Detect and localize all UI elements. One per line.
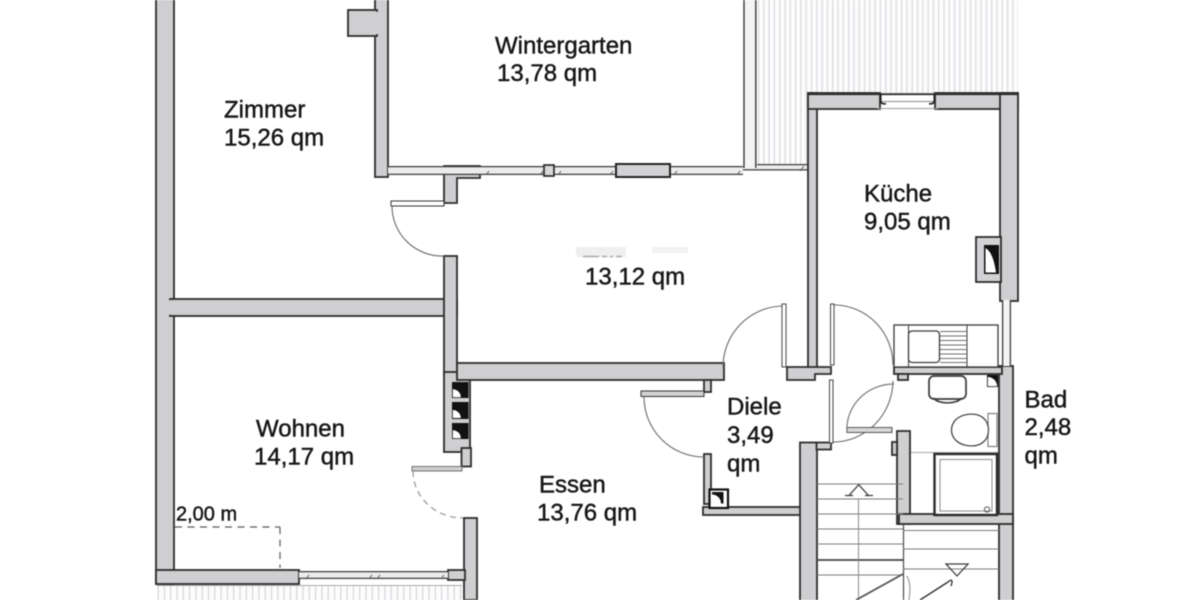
svg-text:Küche: Küche: [864, 181, 932, 208]
svg-text:13,76 qm: 13,76 qm: [537, 500, 637, 527]
svg-text:Zimmer: Zimmer: [224, 97, 305, 124]
svg-text:Wohnen: Wohnen: [256, 416, 345, 443]
svg-text:Diele: Diele: [727, 394, 782, 421]
svg-text:9,05 qm: 9,05 qm: [864, 209, 951, 236]
svg-text:Wintergarten: Wintergarten: [495, 33, 632, 60]
svg-text:2,48: 2,48: [1025, 414, 1072, 441]
svg-text:14,17 qm: 14,17 qm: [254, 444, 354, 471]
svg-text:15,26 qm: 15,26 qm: [224, 125, 324, 152]
svg-text:qm: qm: [727, 451, 760, 478]
svg-text:2,00 m: 2,00 m: [176, 504, 237, 526]
svg-text:13,12 qm: 13,12 qm: [585, 264, 685, 291]
svg-text:Essen: Essen: [539, 472, 606, 499]
svg-text:qm: qm: [1025, 443, 1058, 470]
svg-text:Bad: Bad: [1025, 387, 1068, 414]
svg-text:13,78 qm: 13,78 qm: [497, 60, 597, 87]
svg-text:3,49: 3,49: [727, 422, 774, 449]
